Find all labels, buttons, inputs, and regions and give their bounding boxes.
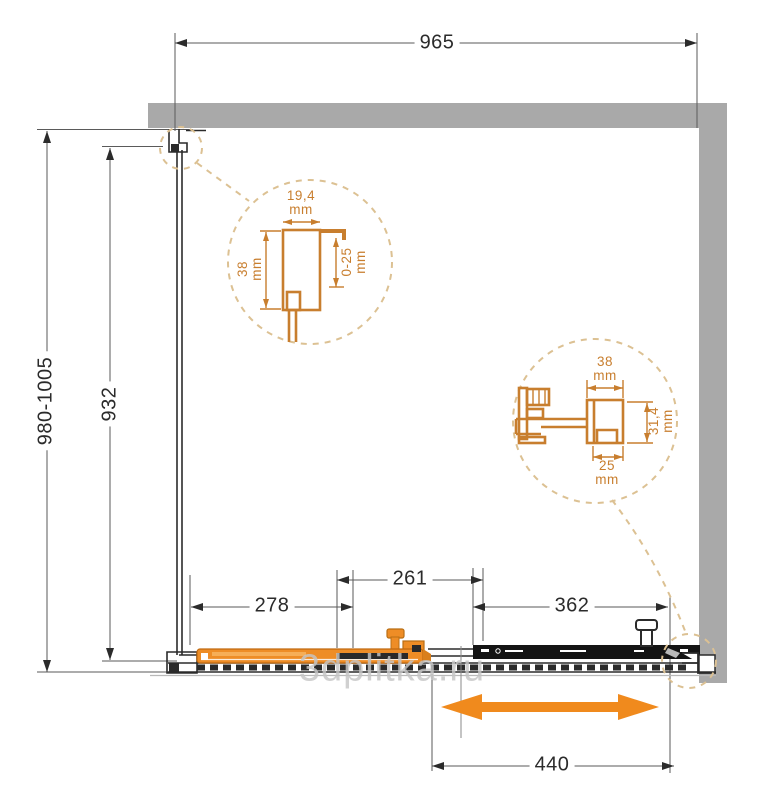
watermark: 3dplitka.ru — [299, 648, 485, 691]
wall — [148, 103, 727, 683]
detail2-height: 31,4 mm — [647, 405, 675, 437]
detail2-width: 38 mm — [591, 355, 619, 383]
detail2-channel: 25 mm — [593, 459, 621, 487]
dim-height-total: 980-1005 — [36, 352, 57, 451]
door-knob — [636, 620, 657, 646]
leader-line-top — [197, 163, 249, 201]
detail1-width: 19,4 mm — [285, 189, 317, 217]
callout-source-top — [160, 127, 202, 169]
slide-direction-arrow — [441, 694, 659, 720]
dim-door-mid: 261 — [388, 569, 433, 590]
detail1-adjust: 0-25 mm — [340, 245, 368, 278]
dim-opening: 440 — [530, 755, 575, 776]
detail-wall-profile-drawing — [260, 219, 346, 342]
technical-drawing: 3dplitka.ru 965 980-1005 932 278 261 362… — [0, 0, 764, 800]
detail1-height: 38 mm — [236, 255, 264, 283]
detail-rail-profile-drawing — [516, 380, 653, 461]
leader-line-rail — [612, 500, 687, 636]
dim-door-overlap: 278 — [250, 596, 295, 617]
side-glass-panel — [177, 150, 182, 655]
dim-height-glass: 932 — [100, 382, 121, 427]
dim-fixed-panel: 362 — [550, 596, 595, 617]
detail-callout-circles — [160, 127, 716, 688]
dim-width-top: 965 — [415, 33, 460, 54]
